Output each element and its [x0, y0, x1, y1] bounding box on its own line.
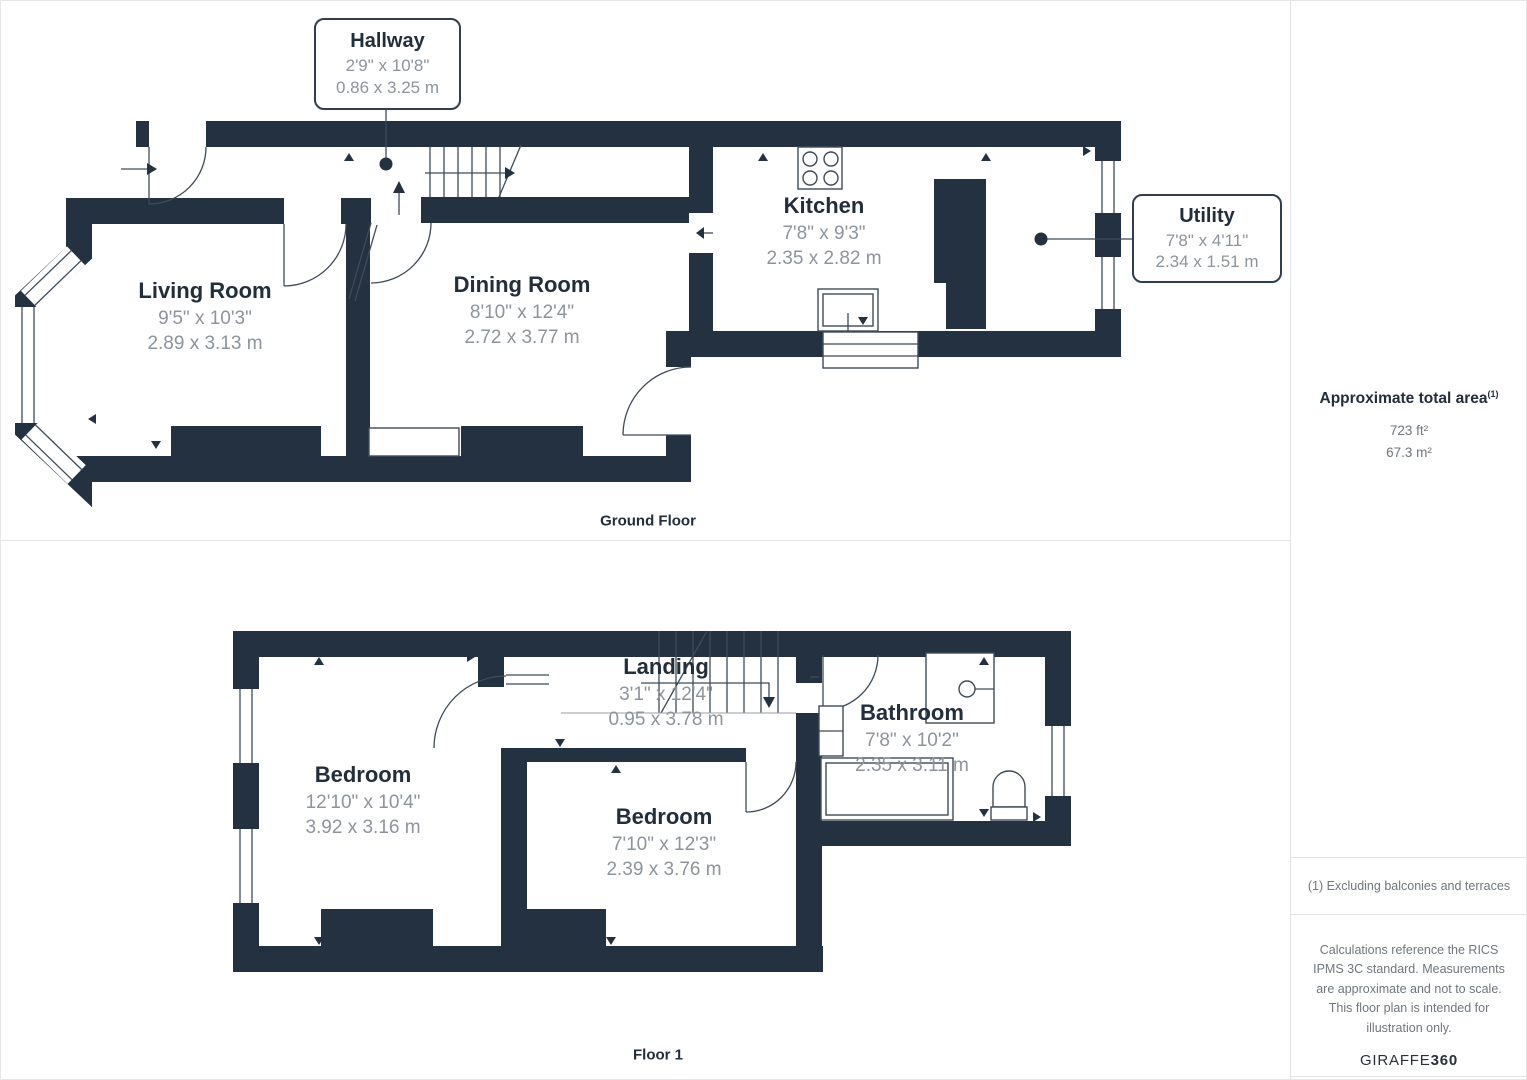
room-dims-imperial: 7'10" x 12'3": [606, 833, 721, 858]
footnote-text: (1) Excluding balconies and terraces: [1308, 879, 1510, 893]
entry-arrow-icon: [121, 163, 157, 175]
room-dims-imperial: 7'8" x 10'2": [855, 729, 969, 754]
sink-icon: [818, 289, 878, 331]
disclaimer-text: Calculations reference the RICS IPMS 3C …: [1311, 941, 1507, 1038]
total-area-m: 67.3 m²: [1291, 442, 1527, 464]
room-dims-imperial: 3'1" x 12'4": [608, 683, 723, 708]
room-dims-imperial: 2'9" x 10'8": [316, 55, 459, 76]
info-sidebar: Approximate total area(1) 723 ft² 67.3 m…: [1290, 1, 1527, 1080]
room-label-living-room: Living Room 9'5" x 10'3" 2.89 x 3.13 m: [138, 278, 271, 356]
floorplan-page: Living Room 9'5" x 10'3" 2.89 x 3.13 m D…: [0, 0, 1527, 1080]
bedroom2-door-icon: [746, 762, 796, 812]
room-dims-imperial: 9'5" x 10'3": [138, 307, 271, 332]
room-name: Kitchen: [766, 193, 881, 219]
room-dims-metric: 0.95 x 3.78 m: [608, 708, 723, 733]
total-area-title: Approximate total area(1): [1291, 389, 1527, 408]
back-door-icon: [623, 367, 691, 435]
living-room-door-icon: [284, 224, 346, 286]
room-dims-metric: 2.34 x 1.51 m: [1134, 251, 1280, 272]
callout-utility: Utility 7'8" x 4'11" 2.34 x 1.51 m: [1132, 194, 1282, 283]
giraffe360-logo: GIRAFFE360: [1291, 1052, 1527, 1069]
room-name: Utility: [1134, 205, 1280, 228]
room-label-bathroom: Bathroom 7'8" x 10'2" 2.35 x 3.11 m: [855, 700, 969, 778]
room-name: Bedroom: [305, 762, 420, 788]
brand-name: GIRAFFE: [1360, 1052, 1431, 1069]
room-name: Hallway: [316, 30, 459, 53]
room-name: Bedroom: [606, 804, 721, 830]
room-name: Living Room: [138, 278, 271, 304]
total-area-ft: 723 ft²: [1291, 420, 1527, 442]
stairs-up-arrow-icon: [393, 181, 405, 215]
room-name: Landing: [608, 654, 723, 680]
ground-stairs-icon: [425, 145, 521, 197]
room-dims-metric: 3.92 x 3.16 m: [305, 816, 420, 841]
bay-window-icon: [15, 239, 86, 484]
radiator-icon: [819, 706, 843, 756]
room-dims-imperial: 8'10" x 12'4": [454, 301, 591, 326]
room-label-dining-room: Dining Room 8'10" x 12'4" 2.72 x 3.77 m: [454, 272, 591, 350]
room-dims-imperial: 7'8" x 9'3": [766, 222, 881, 247]
kitchen-door-arrow-icon: [696, 227, 713, 239]
room-dims-metric: 2.35 x 2.82 m: [766, 247, 881, 272]
steps-icon: [823, 332, 918, 368]
room-dims-metric: 2.72 x 3.77 m: [454, 326, 591, 351]
room-dims-metric: 2.35 x 3.11 m: [855, 754, 969, 779]
room-name: Dining Room: [454, 272, 591, 298]
ground-floor-plan: [1, 1, 1291, 541]
footnote-box: (1) Excluding balconies and terraces: [1291, 857, 1527, 915]
stove-icon: [798, 147, 842, 189]
floor1-caption: Floor 1: [633, 1047, 683, 1064]
room-dims-imperial: 12'10" x 10'4": [305, 791, 420, 816]
bathroom-window-icon: [1045, 726, 1071, 796]
room-name: Bathroom: [855, 700, 969, 726]
callout-hallway: Hallway 2'9" x 10'8" 0.86 x 3.25 m: [314, 18, 461, 110]
toilet-icon: [991, 771, 1027, 820]
room-label-kitchen: Kitchen 7'8" x 9'3" 2.35 x 2.82 m: [766, 193, 881, 271]
total-area-footnote-marker: (1): [1487, 389, 1498, 399]
ground-floor-caption: Ground Floor: [600, 513, 696, 530]
front-door-icon: [149, 147, 206, 204]
room-dims-metric: 2.39 x 3.76 m: [606, 858, 721, 883]
room-dims-metric: 2.89 x 3.13 m: [138, 332, 271, 357]
room-label-bedroom-2: Bedroom 7'10" x 12'3" 2.39 x 3.76 m: [606, 804, 721, 882]
floor-sections-divider: [1, 540, 1290, 541]
total-area-title-text: Approximate total area: [1320, 390, 1488, 407]
room-dims-metric: 0.86 x 3.25 m: [316, 77, 459, 98]
room-label-landing: Landing 3'1" x 12'4" 0.95 x 3.78 m: [608, 654, 723, 732]
room-dims-imperial: 7'8" x 4'11": [1134, 230, 1280, 251]
total-area-block: Approximate total area(1) 723 ft² 67.3 m…: [1291, 389, 1527, 464]
brand-suffix: 360: [1431, 1052, 1458, 1069]
alcove-box: [369, 428, 459, 456]
room-label-bedroom-1: Bedroom 12'10" x 10'4" 3.92 x 3.16 m: [305, 762, 420, 840]
disclaimer-box: Calculations reference the RICS IPMS 3C …: [1291, 915, 1527, 1077]
